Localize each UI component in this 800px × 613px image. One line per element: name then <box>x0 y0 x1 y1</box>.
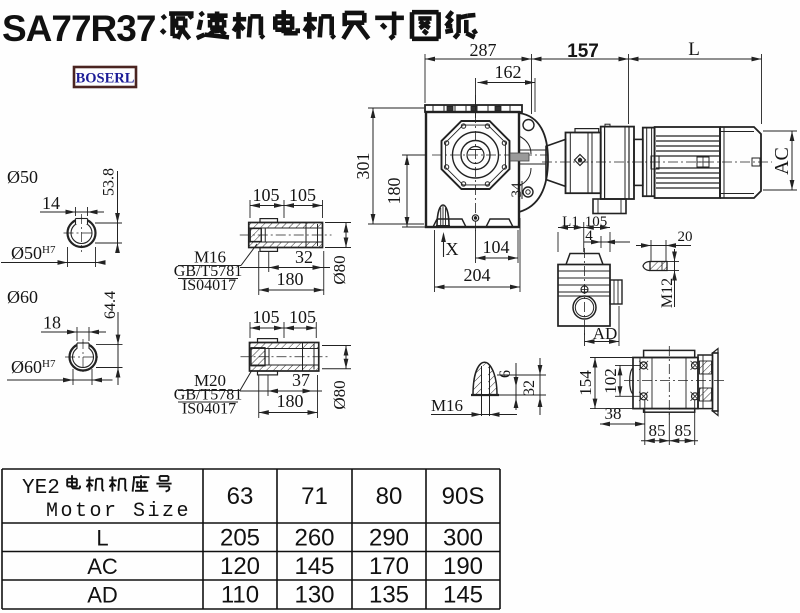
svg-text:205: 205 <box>220 525 260 552</box>
svg-text:IS04017: IS04017 <box>182 401 236 418</box>
svg-text:154: 154 <box>576 370 595 396</box>
svg-text:180: 180 <box>384 178 404 205</box>
svg-text:120: 120 <box>220 553 260 580</box>
svg-text:Motor Size: Motor Size <box>46 500 191 523</box>
svg-text:M12: M12 <box>659 278 676 308</box>
svg-text:L1: L1 <box>562 214 579 230</box>
svg-text:301: 301 <box>353 153 373 180</box>
svg-text:145: 145 <box>294 553 334 580</box>
svg-text:105: 105 <box>289 307 316 327</box>
svg-text:L: L <box>688 39 700 60</box>
svg-text:105: 105 <box>253 307 280 327</box>
svg-text:BOSERL: BOSERL <box>76 71 135 87</box>
svg-text:105: 105 <box>289 185 316 205</box>
svg-text:145: 145 <box>443 582 483 609</box>
svg-text:IS04017: IS04017 <box>182 277 236 294</box>
svg-text:AC: AC <box>771 147 793 175</box>
svg-text:204: 204 <box>464 265 491 285</box>
svg-text:SA77R37: SA77R37 <box>2 8 155 49</box>
svg-text:260: 260 <box>294 525 334 552</box>
svg-text:AC: AC <box>87 554 118 579</box>
svg-text:162: 162 <box>495 62 522 82</box>
svg-text:130: 130 <box>294 582 334 609</box>
svg-text:85: 85 <box>675 421 692 440</box>
svg-text:53.8: 53.8 <box>101 168 118 196</box>
svg-text:L: L <box>96 526 108 551</box>
svg-text:104: 104 <box>483 237 510 257</box>
svg-text:M16: M16 <box>431 396 463 415</box>
svg-text:85: 85 <box>649 421 666 440</box>
svg-text:157: 157 <box>567 41 599 62</box>
svg-text:14: 14 <box>42 193 60 213</box>
svg-text:Ø80: Ø80 <box>330 255 349 284</box>
svg-text:90S: 90S <box>442 483 485 510</box>
svg-text:64.4: 64.4 <box>102 291 119 319</box>
svg-text:102: 102 <box>601 368 620 394</box>
svg-text:Ø50: Ø50 <box>7 167 38 187</box>
svg-text:32: 32 <box>295 247 313 267</box>
svg-text:170: 170 <box>369 553 409 580</box>
svg-text:71: 71 <box>301 483 328 510</box>
svg-text:37: 37 <box>292 370 310 390</box>
svg-text:287: 287 <box>470 40 497 60</box>
svg-text:20: 20 <box>678 229 693 245</box>
svg-text:290: 290 <box>369 525 409 552</box>
svg-text:180: 180 <box>277 391 304 411</box>
svg-text:32: 32 <box>521 380 538 396</box>
svg-text:4: 4 <box>585 228 593 244</box>
svg-text:135: 135 <box>369 582 409 609</box>
svg-text:X: X <box>446 239 459 259</box>
svg-text:190: 190 <box>443 553 483 580</box>
svg-text:300: 300 <box>443 525 483 552</box>
svg-text:6: 6 <box>497 370 514 378</box>
svg-text:63: 63 <box>227 483 254 510</box>
svg-text:Ø80: Ø80 <box>330 380 349 409</box>
svg-text:38: 38 <box>605 404 622 423</box>
svg-text:18: 18 <box>43 313 61 333</box>
svg-text:YE2: YE2 <box>22 477 60 500</box>
svg-text:80: 80 <box>376 483 403 510</box>
svg-text:180: 180 <box>277 269 304 289</box>
svg-text:105: 105 <box>253 185 280 205</box>
svg-text:AD: AD <box>87 583 118 608</box>
svg-text:AD: AD <box>593 324 618 343</box>
svg-text:110: 110 <box>221 582 259 609</box>
svg-text:34: 34 <box>509 182 525 198</box>
svg-text:Ø60: Ø60 <box>7 287 38 307</box>
